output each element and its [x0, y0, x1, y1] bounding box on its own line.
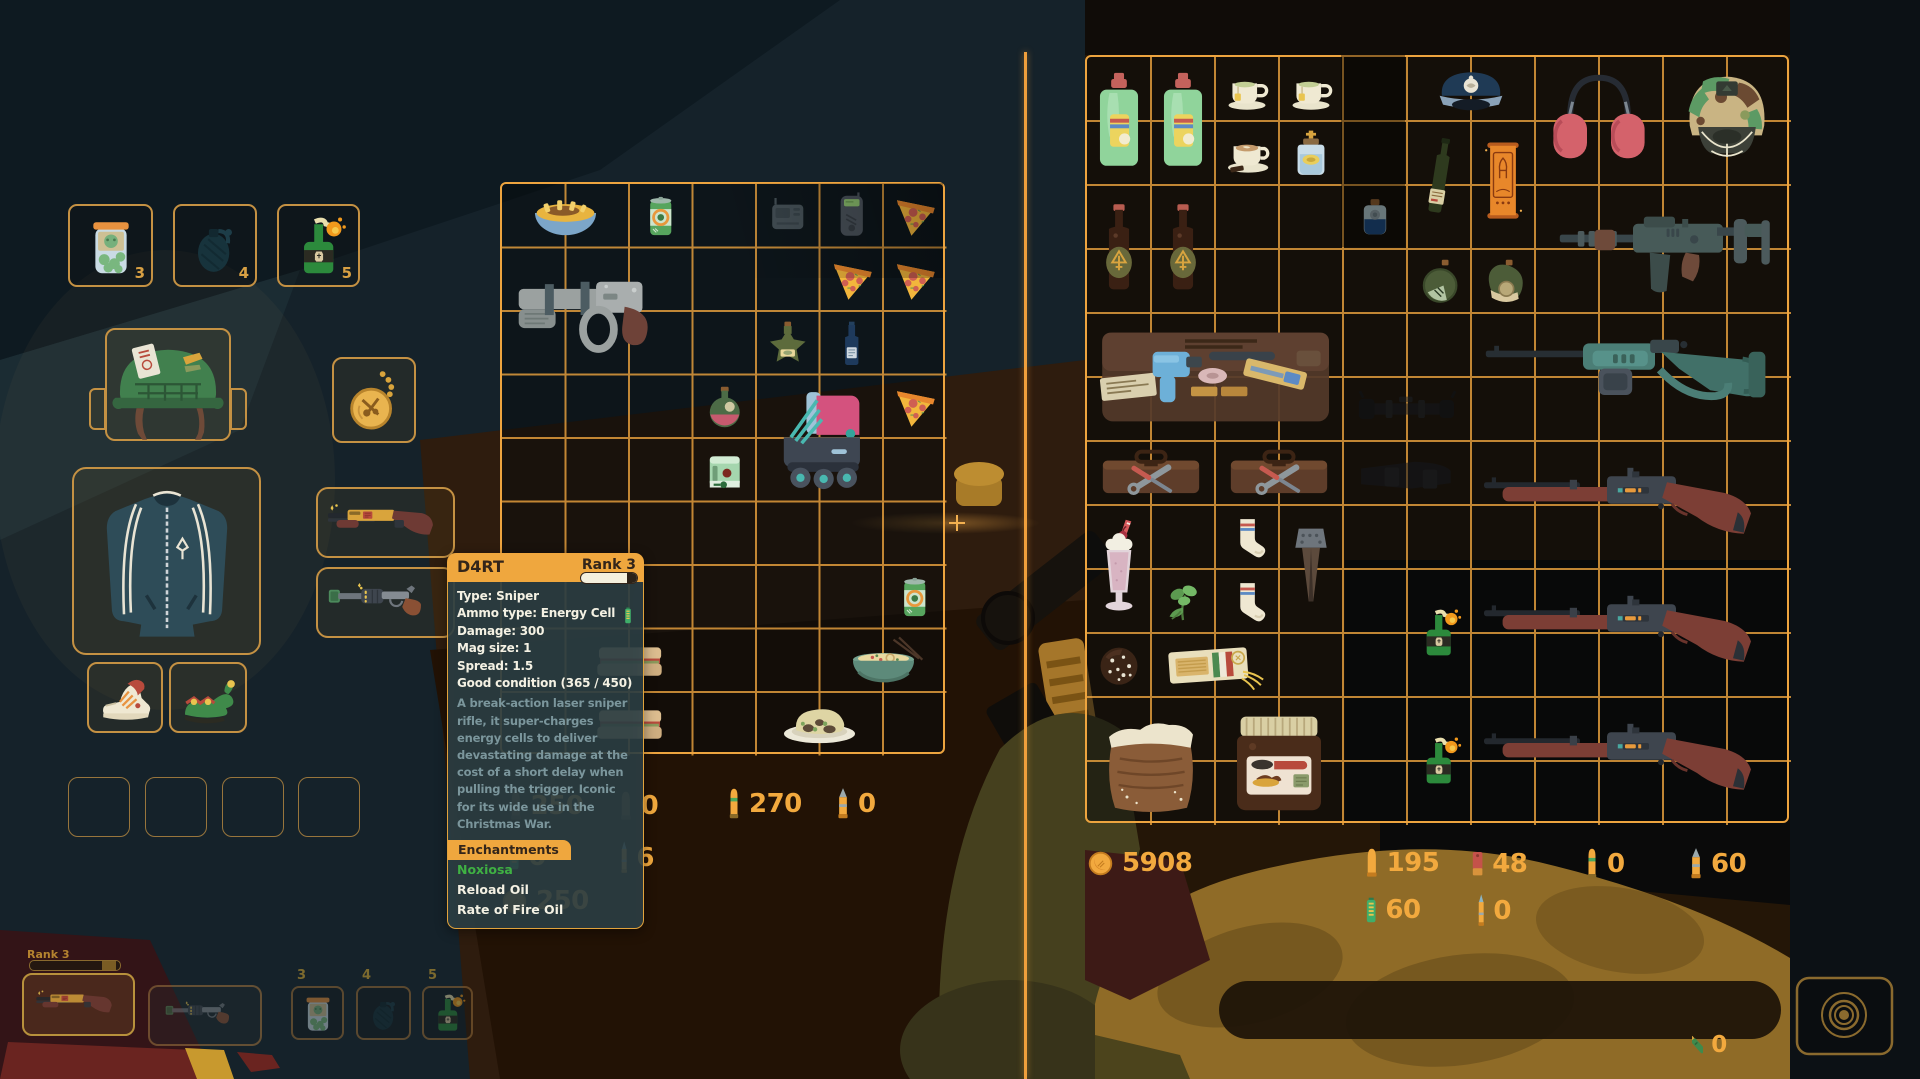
food_plate-icon: [760, 696, 879, 752]
red_rifle-icon: [1475, 445, 1787, 565]
item-molotov-cocktail[interactable]: [1411, 701, 1467, 821]
item-ramen-bowl[interactable]: [824, 633, 943, 689]
beer-icon: [1091, 189, 1147, 309]
tooltip-stat: Mag size: 1: [457, 640, 634, 657]
wine_bottle-icon: [824, 315, 880, 371]
coin-icon: [1087, 850, 1114, 877]
hotkey-number: 4: [239, 264, 249, 282]
item-pizza-slice[interactable]: [824, 252, 880, 308]
panel-divider: [1024, 52, 1027, 1079]
stash-ammo-counter-4: 60: [1365, 894, 1421, 925]
item-detergent-bottle[interactable]: [1155, 61, 1211, 181]
item-blue-potion[interactable]: [1347, 189, 1403, 245]
pouch-slot[interactable]: [145, 777, 207, 837]
stash-ammo-counter-3: 60: [1689, 846, 1746, 881]
item-captain-hat[interactable]: [1411, 61, 1531, 117]
item-tooltip: D4RT Rank 3 Type: SniperAmmo type: Energ…: [447, 553, 644, 929]
hud-hotkey-number: 5: [428, 968, 437, 983]
item-tool-case[interactable]: [1091, 317, 1339, 437]
item-flour-sack[interactable]: [1091, 701, 1211, 821]
item-coin-flask[interactable]: [1475, 253, 1531, 309]
item-beer-bottle[interactable]: [1155, 189, 1211, 309]
ramen_bowl-icon: [824, 633, 943, 689]
hud-quickslot-4[interactable]: [356, 986, 411, 1040]
item-pizza-slice[interactable]: [887, 252, 943, 308]
stash-ammo-counter-0: 195: [1365, 846, 1439, 880]
item-milkshake[interactable]: [1091, 509, 1147, 629]
hotkey-number: 3: [135, 264, 145, 282]
thin-bullet-icon: [1477, 893, 1485, 928]
spaghetti-icon: [1155, 637, 1275, 693]
blue_potion-icon: [1347, 189, 1403, 245]
item-rail-spike[interactable]: [1283, 509, 1339, 629]
assault_rifle-icon: [1539, 189, 1787, 309]
item-pizza-slice[interactable]: [887, 379, 943, 435]
green-cart-icon: [1692, 1031, 1703, 1059]
item-rifle-scope[interactable]: [1347, 381, 1467, 437]
flask_coin-icon: [1475, 253, 1531, 309]
item-toolbox[interactable]: [1219, 445, 1339, 501]
equipped-weapon-icon: [28, 981, 128, 1027]
equipment-body-slot[interactable]: [72, 467, 261, 655]
milkshake-icon: [1091, 509, 1147, 629]
item-ear-defenders[interactable]: [1539, 61, 1659, 181]
tooltip-stat: Good condition (365 / 450): [457, 675, 634, 692]
molotov-icon: [1411, 573, 1467, 693]
item-food-plate[interactable]: [760, 696, 879, 752]
item-chocolate-spread-jar[interactable]: [1219, 701, 1339, 821]
item-soda-can[interactable]: [633, 188, 689, 244]
star_bottle-icon: [760, 315, 816, 371]
grenade-icon: [362, 991, 406, 1035]
item-molotov-cocktail[interactable]: [1411, 573, 1467, 693]
stash-coins-counter: 5908: [1087, 848, 1192, 878]
item-lever-sniper[interactable]: [1475, 317, 1787, 437]
nutella-icon: [1219, 701, 1339, 821]
item-herb-sprig[interactable]: [1155, 573, 1211, 629]
hud-quickslot-5[interactable]: [422, 986, 473, 1040]
quickbar-slot-3[interactable]: 3: [68, 204, 153, 287]
battery-icon: [1365, 894, 1377, 925]
item-combat-helmet[interactable]: [1667, 61, 1787, 181]
pouch-slot[interactable]: [298, 777, 360, 837]
cookie-icon: [1091, 637, 1147, 693]
xp-bar: [29, 960, 121, 971]
toolbox-icon: [1219, 445, 1339, 501]
scroll-icon: [1475, 125, 1531, 245]
item-wine-bottle[interactable]: [824, 315, 880, 371]
tool_case-icon: [1091, 317, 1339, 437]
teal_rifle-icon: [1475, 317, 1787, 437]
shotshell-icon: [1471, 849, 1484, 879]
shotgun_yellow-icon: [320, 491, 452, 555]
hotkey-number: 5: [342, 264, 352, 282]
item-hunting-rifle[interactable]: [1475, 445, 1787, 565]
special-ammo-counter: 0: [1692, 1031, 1727, 1059]
captain_hat-icon: [1411, 61, 1531, 117]
item-fries-bowl[interactable]: [506, 188, 625, 244]
pizza-icon: [887, 188, 943, 244]
tooltip-rank: Rank 3: [582, 557, 636, 573]
compass_amulet-icon: [338, 363, 410, 437]
item-ammo-box[interactable]: [697, 442, 753, 498]
tooltip-stats: Type: SniperAmmo type: Energy CellDamage…: [457, 588, 634, 692]
item-sock[interactable]: [1219, 509, 1275, 565]
tooltip-item-name: D4RT: [457, 557, 504, 576]
player-ammo-counter-3: 0: [836, 786, 876, 821]
green_box-icon: [697, 442, 753, 498]
player-ammo-counter-2: 270: [727, 786, 802, 821]
rifle-bullet-icon: [727, 786, 741, 821]
pizza-icon: [824, 252, 880, 308]
beer-icon: [1155, 189, 1211, 309]
item-roller-skate[interactable]: [760, 379, 879, 498]
quickbar-slot-5[interactable]: 5: [277, 204, 360, 287]
sneaker-icon: [92, 666, 158, 730]
helmet_green-icon: [93, 326, 243, 444]
toolbox-icon: [1091, 445, 1211, 501]
item-rocket-scroll[interactable]: [1475, 125, 1531, 245]
tooltip-stat: Type: Sniper: [457, 588, 634, 605]
pizza-icon: [887, 379, 943, 435]
gadget-dial[interactable]: [1797, 978, 1892, 1054]
tooltip-body: Type: SniperAmmo type: Energy CellDamage…: [447, 582, 644, 929]
item-hunting-rifle[interactable]: [1475, 701, 1787, 821]
ap-bullet-icon: [1689, 846, 1703, 881]
tooltip-stat: Spread: 1.5: [457, 658, 634, 675]
equipment-shoe-slot-left[interactable]: [87, 662, 163, 733]
teacup-icon: [1219, 61, 1275, 117]
holy_water-icon: [1283, 125, 1339, 181]
pouch-slot[interactable]: [222, 777, 284, 837]
equipment-shoe-slot-right[interactable]: [169, 662, 247, 733]
item-radio[interactable]: [760, 188, 816, 244]
soda_can-icon: [887, 569, 943, 625]
equipment-head-slot[interactable]: [105, 328, 231, 441]
item-dark-wine-bottle[interactable]: [1411, 125, 1467, 245]
oil_flask-icon: [697, 379, 753, 435]
pickle_jar-icon: [296, 991, 340, 1035]
pouch-slot[interactable]: [68, 777, 130, 837]
item-scrap-blaster[interactable]: [506, 252, 689, 371]
item-detergent-bottle[interactable]: [1091, 61, 1147, 181]
fries_bowl-icon: [506, 188, 625, 244]
item-sock[interactable]: [1219, 573, 1275, 629]
detergent-icon: [1155, 61, 1211, 181]
stash-ammo-counter-1: 48: [1471, 849, 1527, 879]
equipment-weapon-slot-2[interactable]: [316, 567, 455, 638]
elf_shoe-icon: [174, 666, 242, 730]
sock-icon: [1219, 509, 1275, 565]
hud-weapon-slot-primary[interactable]: [22, 973, 135, 1036]
scifi_gun-icon: [506, 252, 689, 371]
enchantments-list: NoxiosaReload OilRate of Fire Oil: [457, 860, 634, 920]
phone_device-icon: [824, 188, 880, 244]
tooltip-stat: Ammo type: Energy Cell: [457, 605, 634, 622]
revolver-icon: [320, 571, 452, 635]
quickbar-slot-4[interactable]: 4: [173, 204, 257, 287]
item-spaghetti-pack[interactable]: [1155, 637, 1275, 693]
item-star-bottle[interactable]: [760, 315, 816, 371]
item-oil-flask[interactable]: [697, 379, 753, 435]
item-assault-rifle[interactable]: [1539, 189, 1787, 309]
herb-icon: [1155, 573, 1211, 629]
item-chocolate-cookie[interactable]: [1091, 637, 1147, 693]
item-holy-water[interactable]: [1283, 125, 1339, 181]
red_rifle-icon: [1475, 573, 1787, 693]
pizza-icon: [887, 252, 943, 308]
equipment-amulet-slot[interactable]: [332, 357, 416, 443]
item-hunting-rifle[interactable]: [1475, 573, 1787, 693]
item-pizza-slice[interactable]: [887, 188, 943, 244]
item-coffee-cup[interactable]: [1219, 125, 1275, 181]
item-toolbox[interactable]: [1091, 445, 1211, 501]
rifle-bullet-icon: [1585, 846, 1599, 881]
item-scanner[interactable]: [824, 188, 880, 244]
skate-icon: [760, 379, 879, 498]
enchantments-tab: Enchantments: [448, 840, 571, 860]
scope_dark-icon: [1347, 381, 1467, 437]
tooltip-description: A break-action laser sniper rifle, it su…: [457, 695, 634, 833]
hud-weapon-slot-secondary[interactable]: [148, 985, 262, 1046]
item-soda-can[interactable]: [887, 569, 943, 625]
radio_grey-icon: [760, 188, 816, 244]
item-teacup[interactable]: [1219, 61, 1275, 117]
game-screen: 345 25025002700065908195480606000 D4RT R…: [0, 0, 1920, 1079]
equipment-weapon-slot-1[interactable]: [316, 487, 455, 558]
hud-hotkey-number: 4: [362, 968, 371, 983]
item-herb-flask[interactable]: [1411, 253, 1467, 309]
molotov-icon: [426, 991, 470, 1035]
detergent-icon: [1091, 61, 1147, 181]
item-beer-bottle[interactable]: [1091, 189, 1147, 309]
flour_sack-icon: [1091, 701, 1211, 821]
hud-hotkey-number: 3: [297, 968, 306, 983]
stash-inventory-grid[interactable]: [1085, 55, 1789, 823]
jacket-icon: [81, 470, 253, 652]
coffee_cup-icon: [1219, 125, 1275, 181]
hud-quickslot-3[interactable]: [291, 986, 344, 1040]
flask_herb-icon: [1411, 253, 1467, 309]
dark_bottle-icon: [1411, 125, 1467, 245]
pistol-bullet-icon: [1365, 846, 1379, 880]
ap-bullet-icon: [836, 786, 850, 821]
item-teacup[interactable]: [1283, 61, 1339, 117]
tooltip-stat: Damage: 300: [457, 623, 634, 640]
stock_dark-icon: [1347, 445, 1467, 501]
item-gun-stock[interactable]: [1347, 445, 1467, 501]
stash-ammo-counter-2: 0: [1585, 846, 1625, 881]
soda_can-icon: [633, 188, 689, 244]
enchantment-noxiosa: Noxiosa: [457, 860, 634, 880]
stash-ammo-counter-5: 0: [1477, 893, 1511, 928]
secondary-weapon-icon: [155, 993, 255, 1037]
headphones-icon: [1539, 61, 1659, 181]
camo_helmet-icon: [1667, 61, 1787, 181]
red_rifle-icon: [1475, 701, 1787, 821]
sock-icon: [1219, 573, 1275, 629]
teacup-icon: [1283, 61, 1339, 117]
enchantment-rate-of-fire-oil: Rate of Fire Oil: [457, 900, 634, 920]
rank-progress-bar: [580, 572, 638, 584]
enchantment-reload-oil: Reload Oil: [457, 880, 634, 900]
spike-icon: [1283, 509, 1339, 629]
molotov-icon: [1411, 701, 1467, 821]
